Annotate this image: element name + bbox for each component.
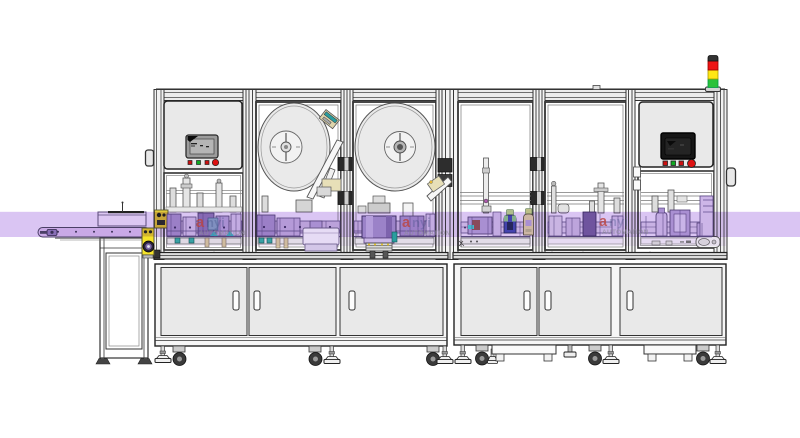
svg-text:AUTOMATION: AUTOMATION <box>602 229 648 236</box>
svg-text:AUTOMATION: AUTOMATION <box>404 230 450 237</box>
svg-text:nyi: nyi <box>609 214 628 229</box>
svg-text:a: a <box>196 215 205 231</box>
svg-text:a: a <box>599 214 608 230</box>
svg-text:nyi: nyi <box>412 215 431 230</box>
svg-text:AUTOMATION: AUTOMATION <box>199 230 245 237</box>
svg-text:nyi: nyi <box>206 215 225 230</box>
svg-text:a: a <box>402 215 411 231</box>
